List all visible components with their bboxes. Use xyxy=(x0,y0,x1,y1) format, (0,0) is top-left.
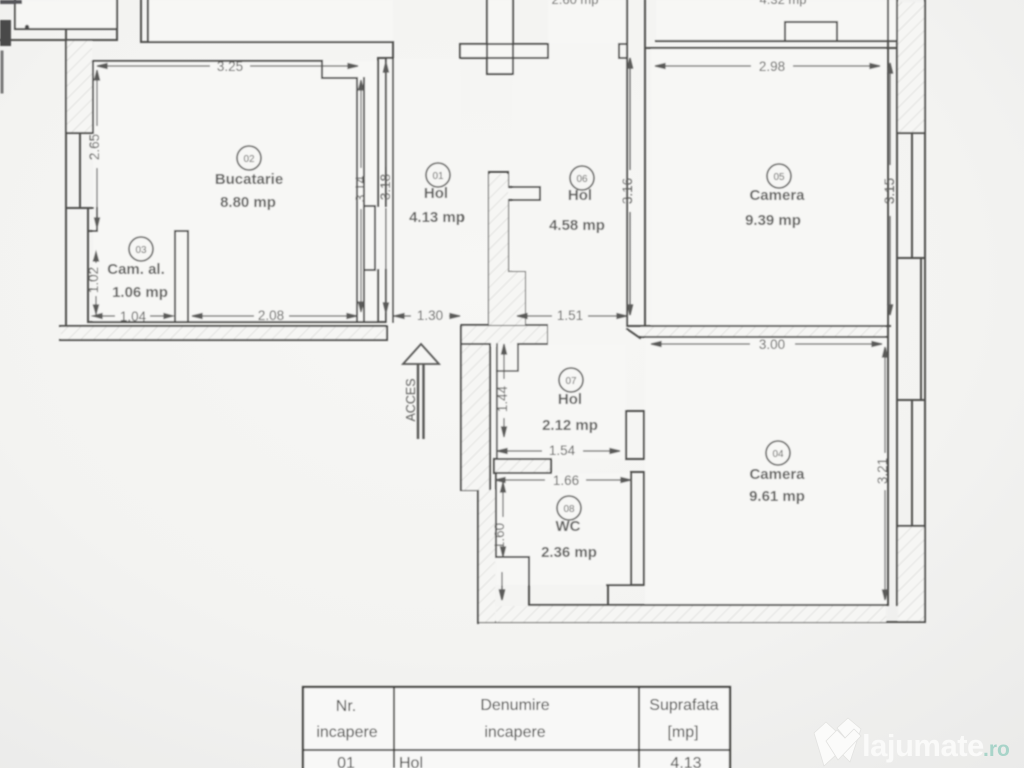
svg-text:02: 02 xyxy=(243,154,255,165)
svg-text:Suprafata: Suprafata xyxy=(649,697,718,714)
svg-text:4.13 mp: 4.13 mp xyxy=(409,209,465,226)
svg-text:4.13: 4.13 xyxy=(670,755,701,768)
svg-text:Camera: Camera xyxy=(749,466,805,483)
svg-text:1.30: 1.30 xyxy=(417,308,443,323)
svg-text:incapere: incapere xyxy=(316,724,377,741)
svg-text:07: 07 xyxy=(565,376,577,387)
svg-text:.ro: .ro xyxy=(983,738,1010,761)
svg-text:05: 05 xyxy=(773,172,785,183)
svg-text:9.39 mp: 9.39 mp xyxy=(745,212,801,229)
svg-text:Nr.: Nr. xyxy=(336,698,356,715)
svg-text:1.02: 1.02 xyxy=(86,267,101,293)
svg-text:1.44: 1.44 xyxy=(495,385,510,412)
svg-text:incapere: incapere xyxy=(484,724,545,741)
svg-text:[mp]: [mp] xyxy=(667,724,698,741)
svg-text:8.80 mp: 8.80 mp xyxy=(220,194,276,211)
svg-text:2.12 mp: 2.12 mp xyxy=(542,417,598,434)
svg-text:Denumire: Denumire xyxy=(480,697,549,714)
svg-text:3.14: 3.14 xyxy=(353,175,368,202)
svg-text:2.65: 2.65 xyxy=(87,134,102,160)
svg-text:2.98: 2.98 xyxy=(759,59,785,74)
svg-text:04: 04 xyxy=(772,449,784,460)
svg-text:Cam. al.: Cam. al. xyxy=(107,261,165,278)
svg-text:1.66: 1.66 xyxy=(553,473,579,488)
svg-text:2.36 mp: 2.36 mp xyxy=(541,544,597,561)
svg-text:Hol: Hol xyxy=(399,755,423,768)
svg-text:Camera: Camera xyxy=(749,187,805,204)
svg-text:3.25: 3.25 xyxy=(217,59,243,74)
svg-text:9.61 mp: 9.61 mp xyxy=(749,488,805,505)
svg-text:Hol: Hol xyxy=(558,391,582,408)
svg-text:3.00: 3.00 xyxy=(759,337,785,352)
svg-text:1.60: 1.60 xyxy=(492,523,507,549)
svg-text:1.54: 1.54 xyxy=(549,443,576,458)
svg-text:ACCES: ACCES xyxy=(404,378,418,421)
svg-text:01: 01 xyxy=(432,171,444,182)
svg-text:2.60 mp: 2.60 mp xyxy=(552,0,599,7)
svg-text:1.04: 1.04 xyxy=(120,309,147,324)
svg-text:3.16: 3.16 xyxy=(620,178,635,204)
svg-text:2.08: 2.08 xyxy=(258,308,284,323)
svg-text:03: 03 xyxy=(135,245,147,256)
svg-text:08: 08 xyxy=(563,504,575,515)
svg-text:4.58 mp: 4.58 mp xyxy=(549,217,605,234)
svg-text:06: 06 xyxy=(576,174,588,185)
svg-text:3.21: 3.21 xyxy=(875,458,890,484)
svg-text:Bucatarie: Bucatarie xyxy=(215,171,283,188)
svg-text:01: 01 xyxy=(337,755,355,768)
svg-text:1.51: 1.51 xyxy=(557,308,583,323)
svg-text:4.32 mp: 4.32 mp xyxy=(760,0,807,7)
svg-text:3.18: 3.18 xyxy=(378,174,393,200)
svg-text:3.15: 3.15 xyxy=(882,178,897,204)
svg-text:lajumate: lajumate xyxy=(862,728,984,763)
svg-text:1.06 mp: 1.06 mp xyxy=(112,284,168,301)
